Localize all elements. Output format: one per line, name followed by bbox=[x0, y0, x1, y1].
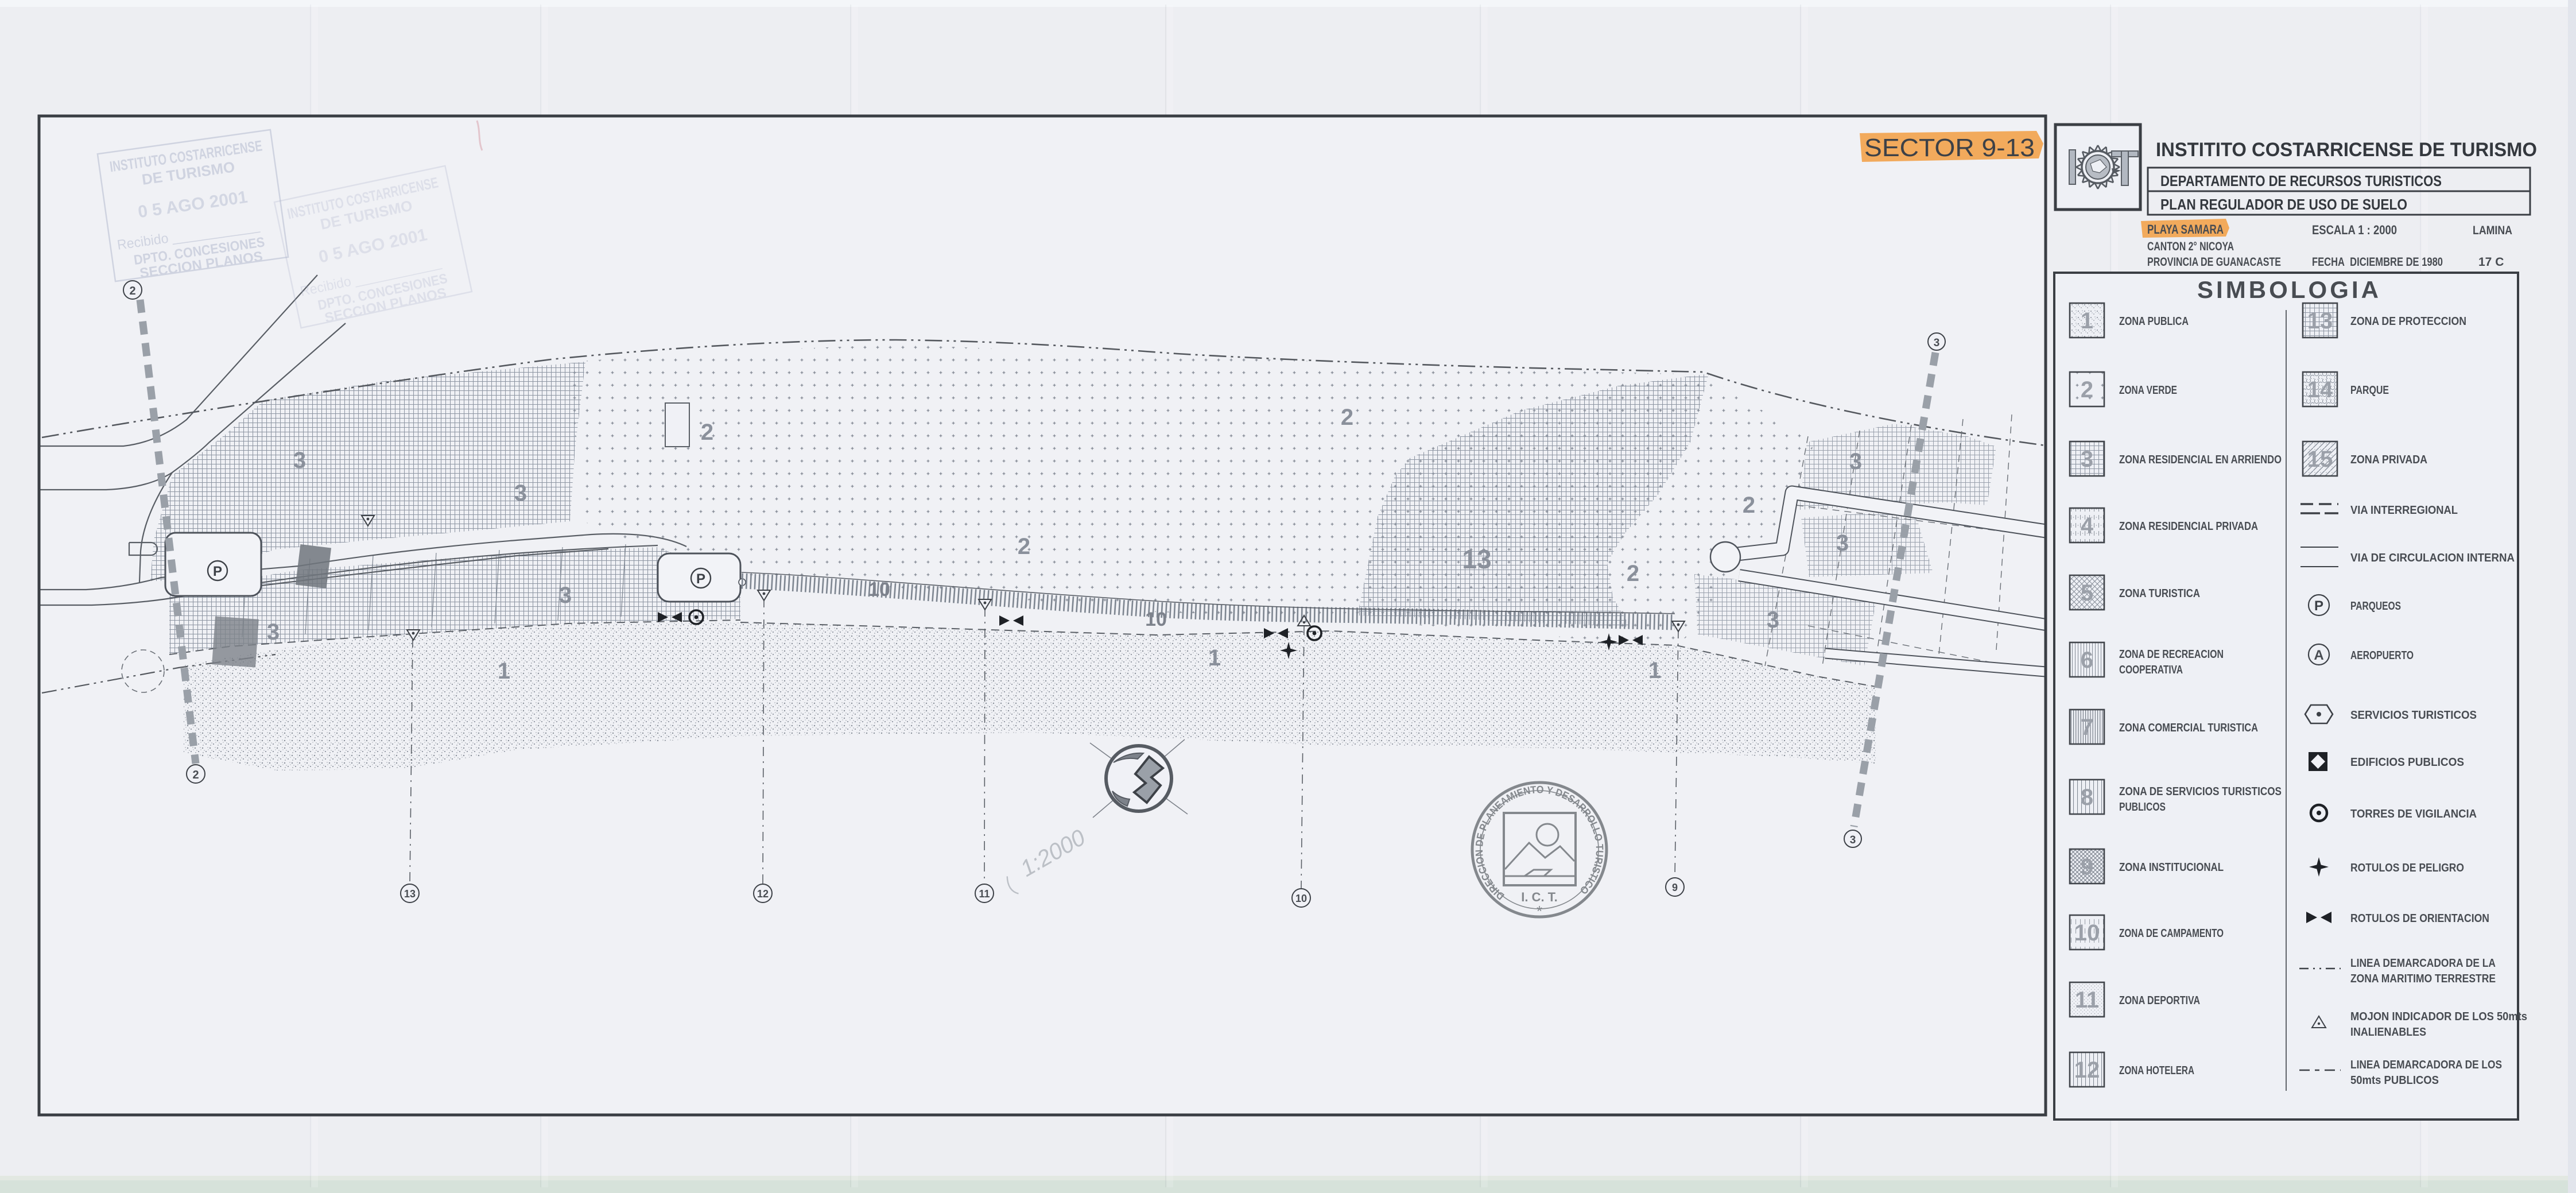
svg-text:9: 9 bbox=[1672, 882, 1678, 893]
svg-text:2: 2 bbox=[701, 420, 713, 445]
svg-text:ZONA DE SERVICIOS TURISTICOS: ZONA DE SERVICIOS TURISTICOS bbox=[2119, 785, 2282, 798]
svg-text:ZONA RESIDENCIAL EN ARRIENDO: ZONA RESIDENCIAL EN ARRIENDO bbox=[2119, 454, 2282, 466]
svg-text:DEPARTAMENTO DE RECURSOS TURIS: DEPARTAMENTO DE RECURSOS TURISTICOS bbox=[2160, 172, 2442, 189]
svg-text:LAMINA: LAMINA bbox=[2473, 224, 2512, 237]
svg-text:ESCALA 1 : 2000: ESCALA 1 : 2000 bbox=[2312, 223, 2397, 237]
svg-text:1: 1 bbox=[498, 659, 510, 684]
svg-text:ZONA INSTITUCIONAL: ZONA INSTITUCIONAL bbox=[2119, 861, 2224, 874]
svg-text:ZONA PUBLICA: ZONA PUBLICA bbox=[2119, 315, 2189, 328]
svg-text:CANTON 2° NICOYA: CANTON 2° NICOYA bbox=[2147, 240, 2234, 253]
svg-text:ZONA HOTELERA: ZONA HOTELERA bbox=[2119, 1064, 2194, 1077]
svg-text:3: 3 bbox=[1836, 530, 1849, 556]
svg-text:3: 3 bbox=[1850, 834, 1856, 846]
svg-text:A: A bbox=[2314, 648, 2323, 663]
svg-text:2: 2 bbox=[1341, 405, 1353, 430]
svg-text:ZONA RESIDENCIAL PRIVADA: ZONA RESIDENCIAL PRIVADA bbox=[2119, 520, 2258, 533]
svg-text:*: * bbox=[1537, 903, 1542, 920]
svg-text:14: 14 bbox=[2307, 377, 2333, 402]
svg-text:VIA INTERREGIONAL: VIA INTERREGIONAL bbox=[2350, 504, 2458, 517]
svg-text:ROTULOS DE PELIGRO: ROTULOS DE PELIGRO bbox=[2350, 862, 2464, 874]
svg-text:11: 11 bbox=[979, 888, 990, 900]
svg-text:1: 1 bbox=[2081, 308, 2093, 334]
svg-text:2: 2 bbox=[1743, 493, 1755, 518]
svg-text:PARQUE: PARQUE bbox=[2350, 384, 2389, 397]
svg-text:PARQUEOS: PARQUEOS bbox=[2350, 600, 2401, 613]
svg-text:FECHA DICIEMBRE DE 1980: FECHA DICIEMBRE DE 1980 bbox=[2312, 255, 2443, 269]
svg-text:6: 6 bbox=[2081, 648, 2093, 673]
svg-text:ROTULOS DE ORIENTACION: ROTULOS DE ORIENTACION bbox=[2350, 912, 2489, 925]
svg-text:PLAYA SAMARA: PLAYA SAMARA bbox=[2147, 222, 2224, 237]
svg-text:3: 3 bbox=[559, 583, 572, 608]
svg-text:10: 10 bbox=[868, 579, 890, 601]
svg-text:INALIENABLES: INALIENABLES bbox=[2350, 1026, 2426, 1039]
svg-text:15: 15 bbox=[2307, 447, 2333, 472]
svg-text:4: 4 bbox=[2081, 513, 2094, 539]
svg-text:SECTOR 9-13: SECTOR 9-13 bbox=[1864, 134, 2035, 162]
svg-text:2: 2 bbox=[192, 769, 199, 781]
svg-text:12: 12 bbox=[2074, 1058, 2100, 1083]
svg-text:VIA DE CIRCULACION INTERNA: VIA DE CIRCULACION INTERNA bbox=[2350, 552, 2515, 564]
svg-text:3: 3 bbox=[293, 448, 306, 473]
svg-text:2: 2 bbox=[129, 285, 135, 297]
svg-text:2: 2 bbox=[1018, 534, 1030, 559]
svg-text:3: 3 bbox=[514, 481, 527, 506]
svg-text:ZONA MARITIMO TERRESTRE: ZONA MARITIMO TERRESTRE bbox=[2350, 973, 2496, 985]
svg-text:ZONA DE CAMPAMENTO: ZONA DE CAMPAMENTO bbox=[2119, 927, 2224, 940]
svg-text:8: 8 bbox=[2081, 785, 2093, 810]
svg-text:EDIFICIOS PUBLICOS: EDIFICIOS PUBLICOS bbox=[2350, 756, 2464, 769]
svg-text:3: 3 bbox=[1849, 449, 1862, 474]
svg-text:3: 3 bbox=[2081, 447, 2093, 472]
svg-text:13: 13 bbox=[1462, 544, 1491, 574]
svg-text:2: 2 bbox=[1627, 561, 1639, 586]
svg-text:50mts PUBLICOS: 50mts PUBLICOS bbox=[2350, 1074, 2439, 1087]
svg-text:TORRES DE VIGILANCIA: TORRES DE VIGILANCIA bbox=[2350, 808, 2477, 820]
svg-text:P: P bbox=[696, 571, 705, 587]
svg-text:LINEA DEMARCADORA DE LOS: LINEA DEMARCADORA DE LOS bbox=[2350, 1059, 2502, 1071]
svg-text:13: 13 bbox=[404, 888, 416, 900]
svg-text:ZONA PRIVADA: ZONA PRIVADA bbox=[2350, 454, 2427, 466]
svg-text:3: 3 bbox=[267, 619, 280, 645]
svg-text:P: P bbox=[2314, 598, 2323, 614]
svg-text:2: 2 bbox=[2081, 377, 2093, 402]
svg-text:3: 3 bbox=[1767, 607, 1779, 633]
svg-text:PLAN REGULADOR DE USO DE SUELO: PLAN REGULADOR DE USO DE SUELO bbox=[2160, 196, 2407, 213]
svg-text:10: 10 bbox=[1145, 609, 1167, 630]
svg-text:ZONA DE PROTECCION: ZONA DE PROTECCION bbox=[2350, 315, 2466, 328]
svg-text:ZONA DE RECREACION: ZONA DE RECREACION bbox=[2119, 648, 2224, 661]
svg-text:5: 5 bbox=[2081, 580, 2093, 606]
svg-text:COOPERATIVA: COOPERATIVA bbox=[2119, 664, 2183, 676]
svg-text:1: 1 bbox=[1648, 658, 1661, 683]
svg-text:ZONA DEPORTIVA: ZONA DEPORTIVA bbox=[2119, 994, 2200, 1007]
svg-text:10: 10 bbox=[2074, 920, 2100, 946]
svg-text:ZONA TURISTICA: ZONA TURISTICA bbox=[2119, 587, 2200, 600]
svg-text:ZONA COMERCIAL TURISTICA: ZONA COMERCIAL TURISTICA bbox=[2119, 722, 2258, 734]
svg-text:11: 11 bbox=[2075, 987, 2099, 1013]
svg-text:AEROPUERTO: AEROPUERTO bbox=[2350, 649, 2414, 662]
svg-text:INSTITITO COSTARRICENSE DE TUR: INSTITITO COSTARRICENSE DE TURISMO bbox=[2156, 139, 2537, 161]
svg-text:I. C. T.: I. C. T. bbox=[1521, 890, 1558, 904]
svg-text:9: 9 bbox=[2081, 854, 2093, 880]
svg-text:P: P bbox=[213, 564, 222, 579]
svg-text:PUBLICOS: PUBLICOS bbox=[2119, 801, 2166, 814]
svg-text:MOJON INDICADOR DE LOS 50mts: MOJON INDICADOR DE LOS 50mts bbox=[2350, 1010, 2527, 1023]
svg-text:PROVINCIA DE GUANACASTE: PROVINCIA DE GUANACASTE bbox=[2147, 255, 2281, 269]
svg-text:12: 12 bbox=[757, 888, 769, 900]
svg-text:3: 3 bbox=[1934, 337, 1940, 349]
svg-text:10: 10 bbox=[1295, 893, 1307, 904]
svg-text:SERVICIOS TURISTICOS: SERVICIOS TURISTICOS bbox=[2350, 709, 2477, 722]
svg-text:ZONA VERDE: ZONA VERDE bbox=[2119, 384, 2177, 397]
svg-text:17 C: 17 C bbox=[2478, 255, 2504, 269]
svg-text:1: 1 bbox=[1208, 645, 1221, 671]
svg-text:7: 7 bbox=[2081, 715, 2093, 740]
svg-text:LINEA DEMARCADORA DE LA: LINEA DEMARCADORA DE LA bbox=[2350, 957, 2496, 970]
svg-text:13: 13 bbox=[2307, 308, 2333, 334]
